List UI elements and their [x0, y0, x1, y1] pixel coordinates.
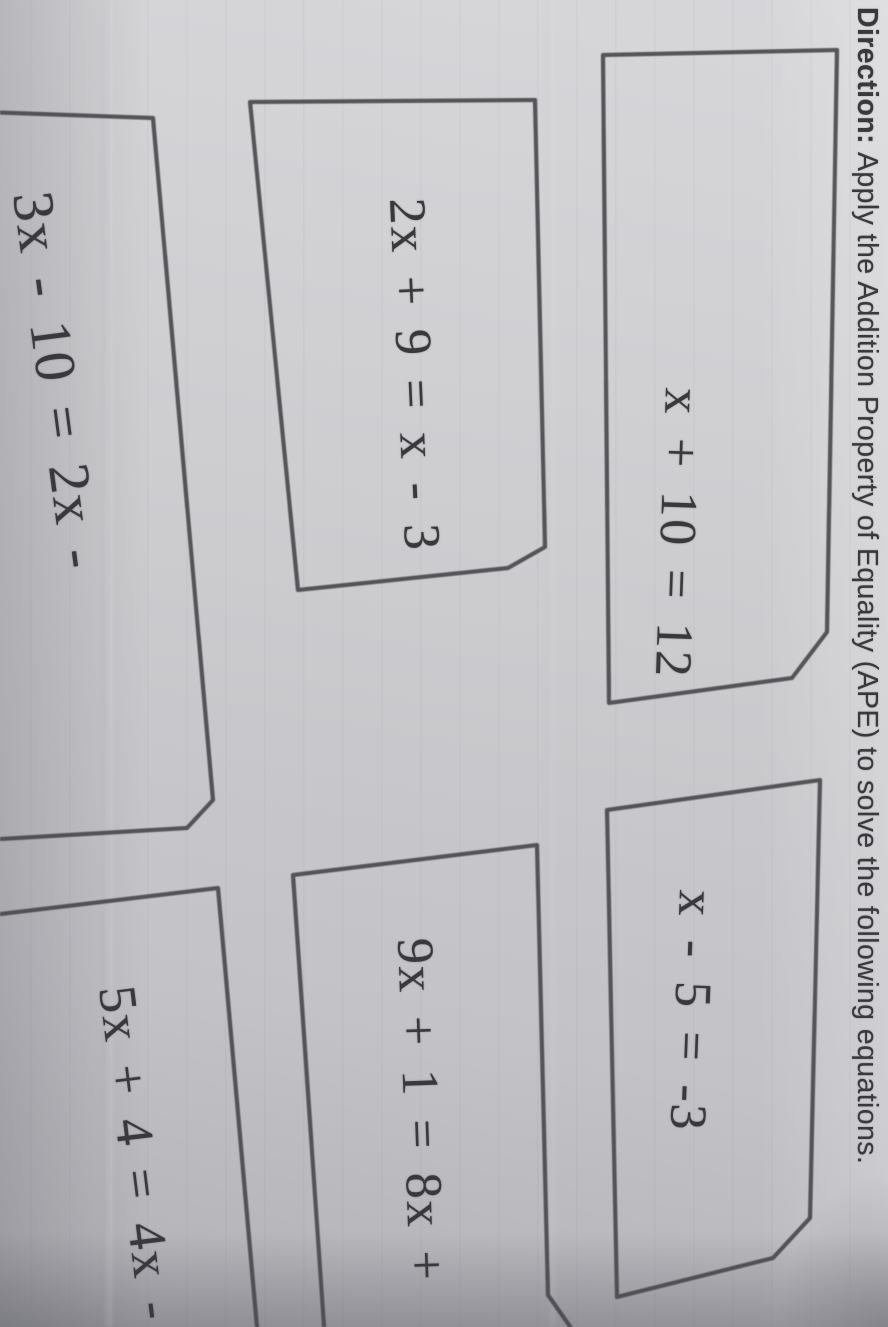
equation-card-1-text: x + 10 = 12 [643, 387, 712, 680]
direction-text: Apply the Addition Property of Equality … [851, 152, 883, 1164]
worksheet-page: Direction:Apply the Addition Property of… [0, 0, 888, 1327]
worksheet-direction: Direction:Apply the Addition Property of… [850, 7, 883, 1164]
equation-card-2-text: x - 5 = -3 [658, 889, 726, 1133]
equation-card-1-outline [603, 50, 837, 703]
worksheet-photo: Direction:Apply the Addition Property of… [0, 0, 888, 1327]
direction-label: Direction: [851, 7, 883, 144]
equation-card-4-text: 9x + 1 = 8x + [385, 937, 456, 1283]
